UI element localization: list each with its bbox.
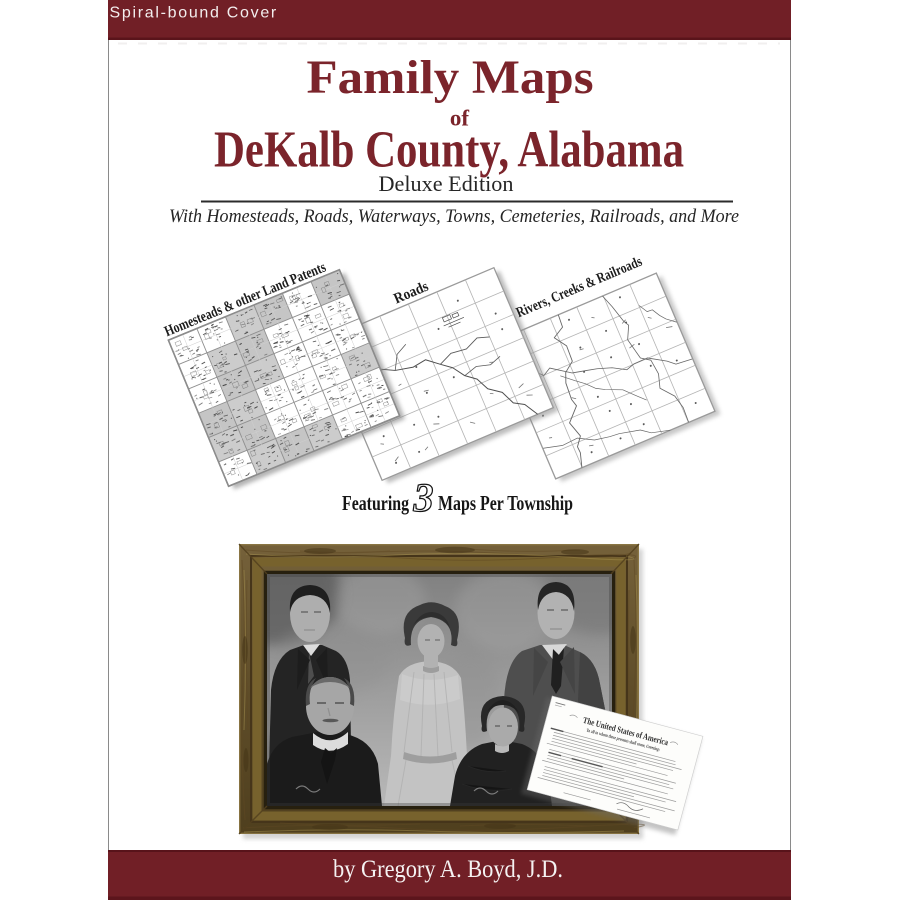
- svg-text:Deluxe Edition: Deluxe Edition: [379, 171, 514, 196]
- svg-text:DeKalb County, Alabama: DeKalb County, Alabama: [214, 122, 684, 179]
- svg-text:by Gregory A. Boyd, J.D.: by Gregory A. Boyd, J.D.: [333, 856, 563, 883]
- svg-text:Maps Per Township: Maps Per Township: [438, 491, 573, 515]
- svg-text:Spiral-bound Cover: Spiral-bound Cover: [110, 5, 278, 22]
- svg-text:With Homesteads, Roads, Waterw: With Homesteads, Roads, Waterways, Towns…: [169, 206, 739, 227]
- svg-text:Family Maps: Family Maps: [307, 51, 594, 104]
- svg-text:3: 3: [413, 475, 434, 520]
- svg-text:Featuring: Featuring: [342, 491, 409, 515]
